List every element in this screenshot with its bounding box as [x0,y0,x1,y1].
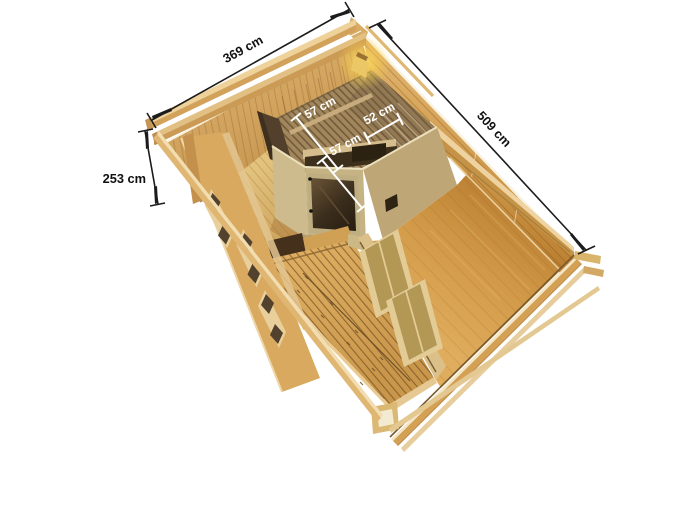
svg-text:253 cm: 253 cm [103,171,146,186]
